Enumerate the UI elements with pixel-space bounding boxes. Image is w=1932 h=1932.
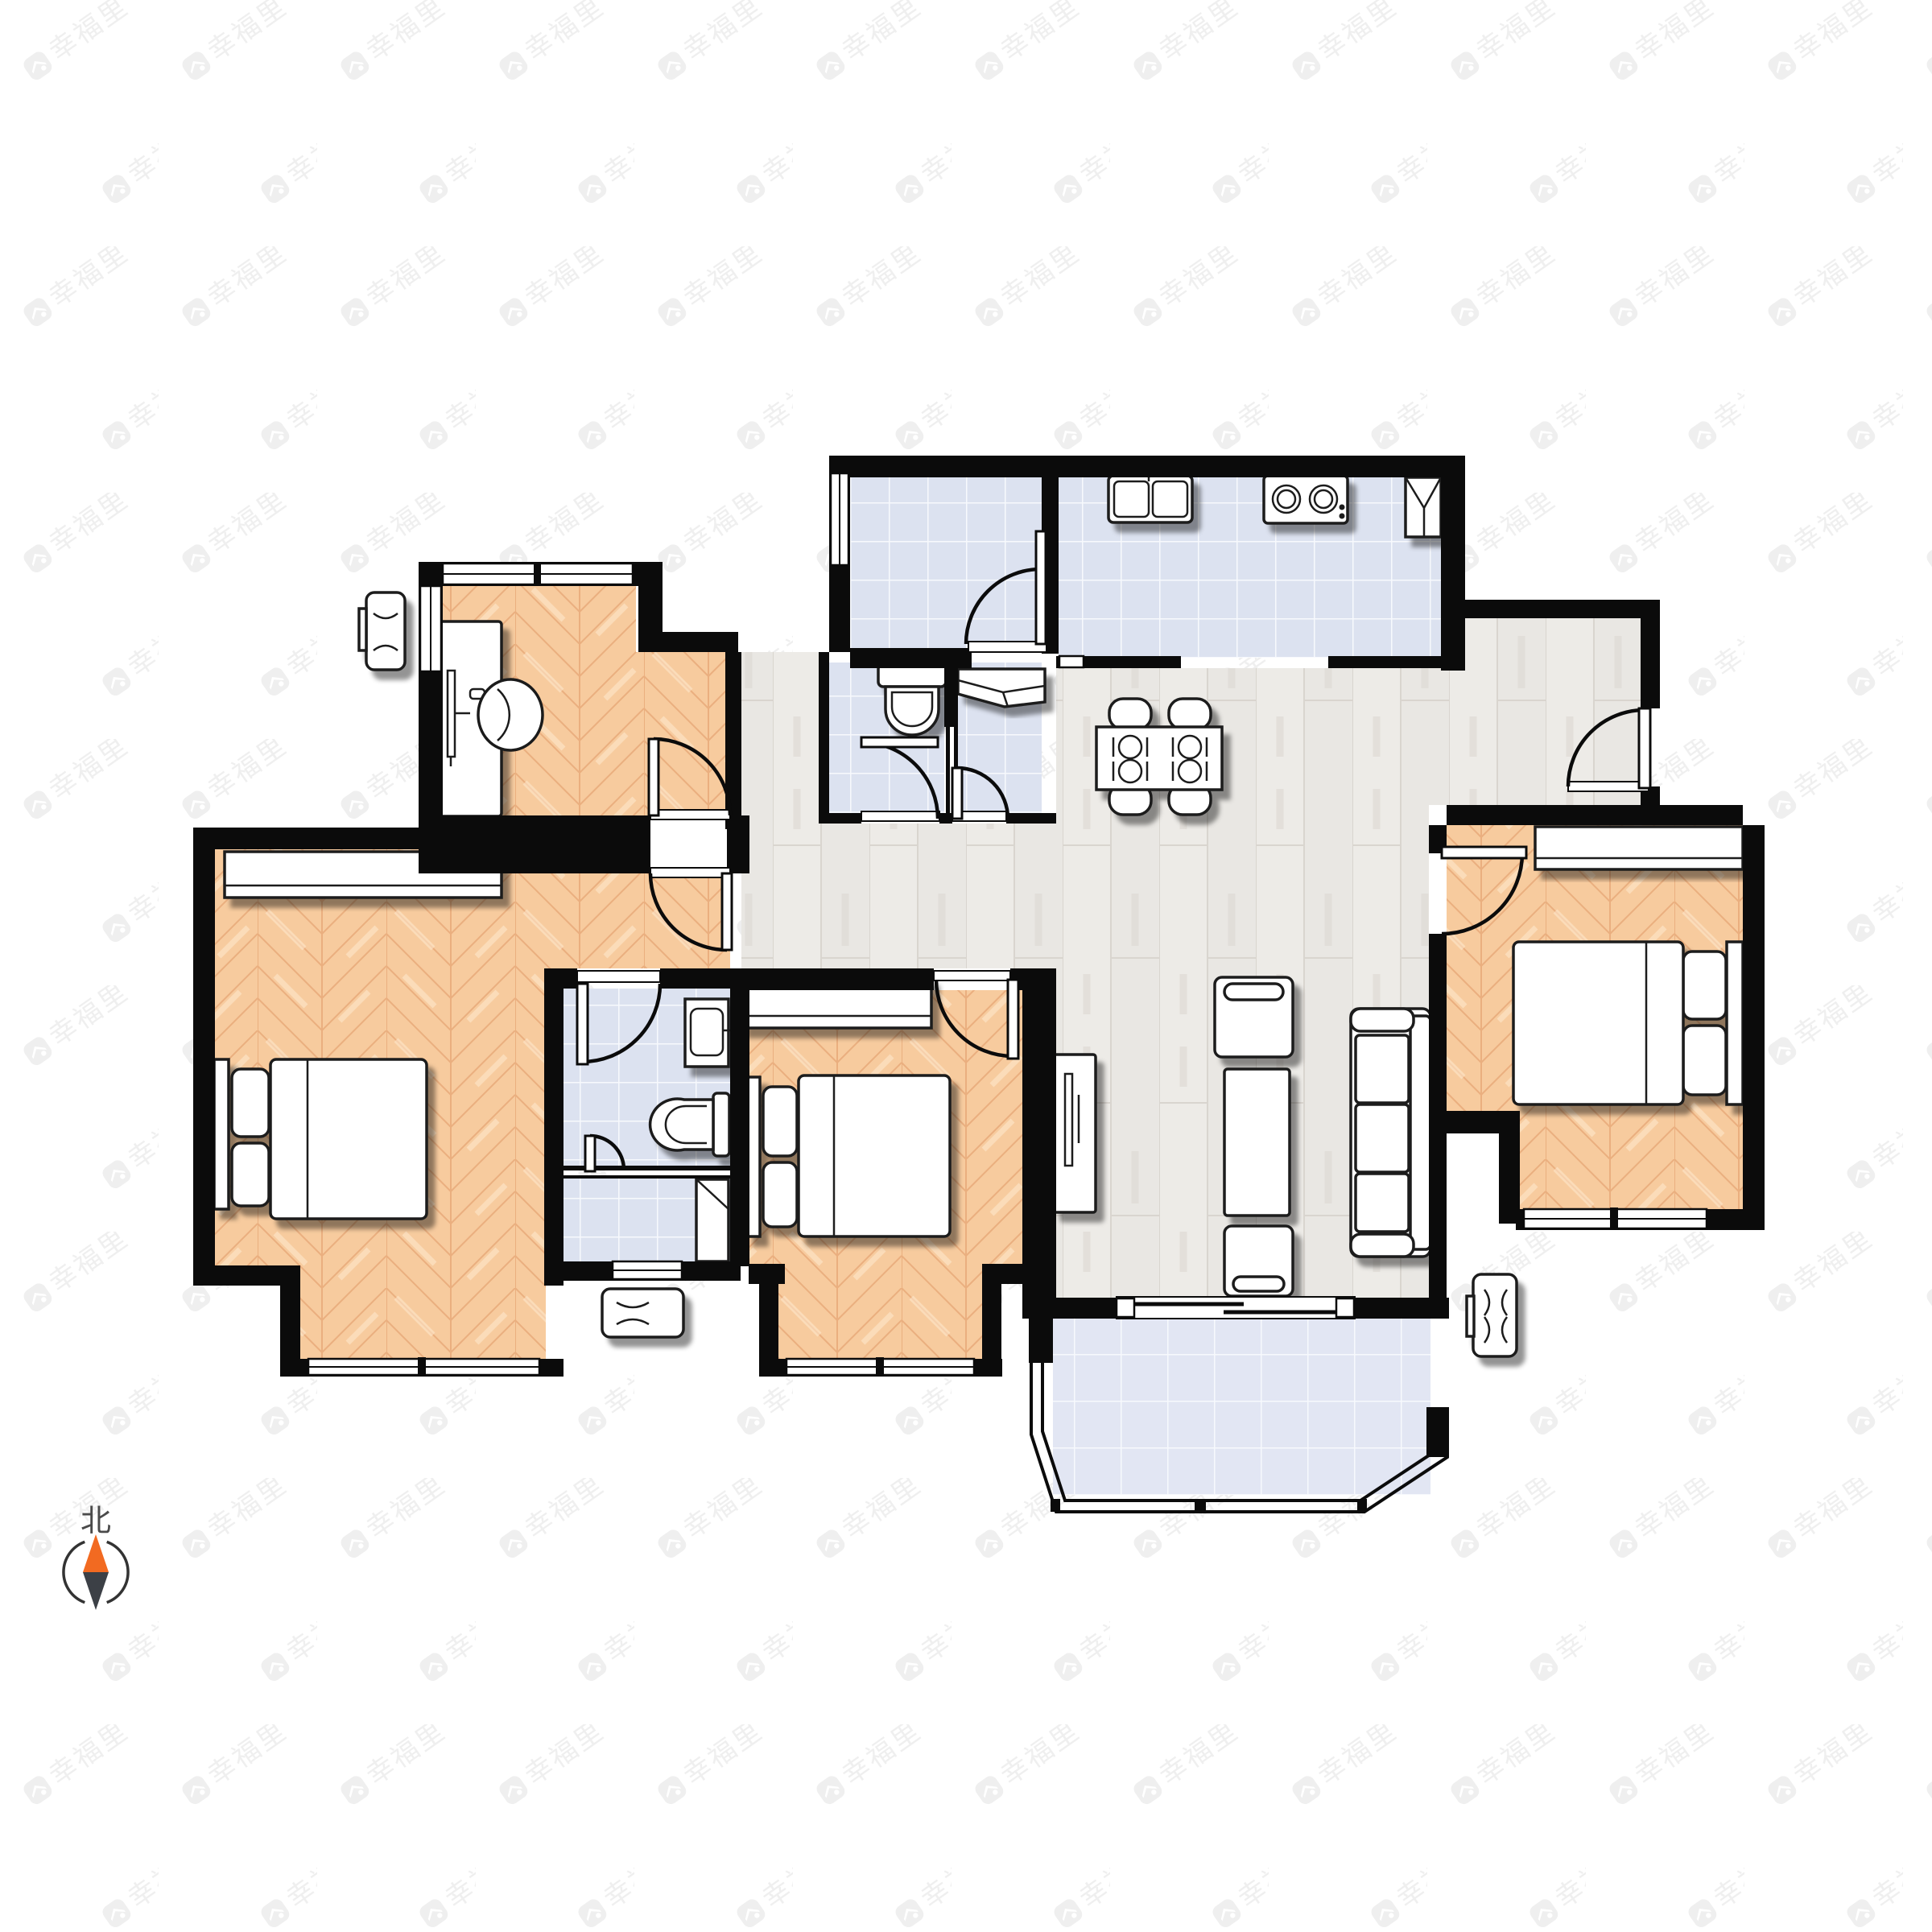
floorplan-canvas: 幸福里 幸福里: [0, 0, 1932, 1932]
dining-chair-icon: [1169, 699, 1211, 729]
ac-outdoor-unit-study-icon: [359, 592, 405, 670]
bed-middle-icon: [747, 1075, 950, 1236]
wardrobe-right-icon: [1535, 827, 1743, 869]
coffee-table-icon: [1224, 1069, 1290, 1216]
washing-machine-icon: [696, 1179, 729, 1261]
desk-chair-icon: [478, 679, 543, 750]
cooktop-icon: [1264, 476, 1348, 523]
window-study-top: [443, 563, 633, 584]
sofa-icon: [1351, 1009, 1430, 1257]
window-utility-left: [831, 473, 848, 565]
balcony-floor: [1053, 1307, 1430, 1495]
compass-north-label: 北: [80, 1503, 111, 1538]
dining-chair-icon: [1109, 699, 1151, 729]
window-bedroom-right-south: [1524, 1207, 1707, 1230]
tv-console-icon: [1054, 1055, 1096, 1212]
floorplan-page: { "meta": { "type": "residential-floorpl…: [0, 0, 1932, 1932]
utility-room-floor: [850, 475, 1042, 650]
armchair-icon: [1215, 977, 1293, 1057]
window-bathroom-south: [613, 1261, 682, 1279]
washbasin-icon: [685, 999, 733, 1067]
sliding-door-balcony: [1117, 1297, 1355, 1319]
ac-outdoor-unit-shaft-icon: [1467, 1274, 1517, 1356]
ac-outdoor-unit-bathroom-icon: [602, 1289, 683, 1337]
window-kitchen-pass: [1059, 656, 1084, 667]
window-bedroom-middle-south: [786, 1357, 974, 1377]
window-bedroom-left-south: [308, 1357, 539, 1377]
dining-table-icon: [1096, 727, 1222, 790]
corner-cabinet-icon: [1406, 477, 1441, 537]
window-study-left: [420, 586, 441, 671]
ottoman-icon: [1224, 1226, 1293, 1296]
toilet-bathroom-icon: [650, 1093, 729, 1156]
